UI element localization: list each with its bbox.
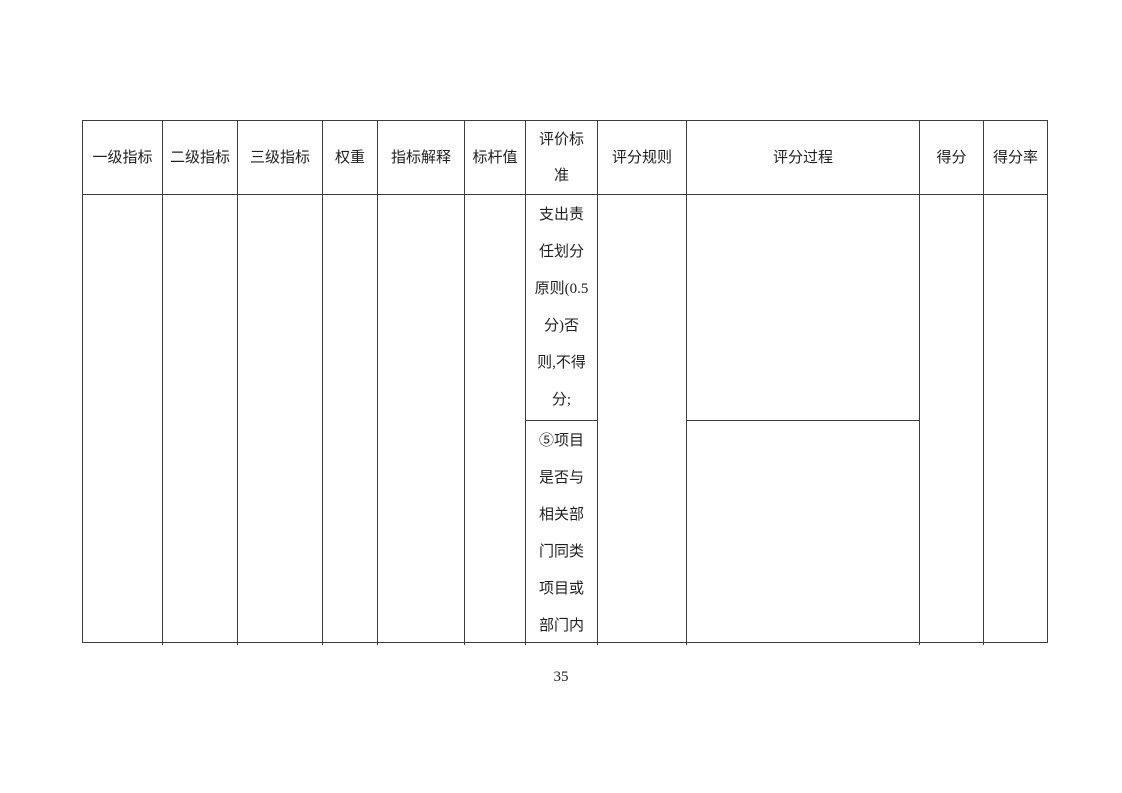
header-score: 得分 bbox=[920, 121, 984, 194]
page: { "page": { "number": "35" }, "colors": … bbox=[0, 0, 1122, 793]
header-benchmark-value: 标杆值 bbox=[465, 121, 526, 194]
header-weight: 权重 bbox=[323, 121, 378, 194]
header-level-3-indicator: 三级指标 bbox=[238, 121, 323, 194]
header-indicator-explanation: 指标解释 bbox=[378, 121, 465, 194]
scoring-process-cell-lower bbox=[687, 421, 919, 645]
header-score-rate: 得分率 bbox=[984, 121, 1047, 194]
column-score bbox=[920, 195, 984, 645]
evaluation-criteria-cell-lower: ⑤项目 是否与 相关部 门同类 项目或 部门内 bbox=[526, 421, 597, 645]
evaluation-criteria-cell-upper: 支出责 任划分 原则(0.5 分)否 则,不得 分; bbox=[526, 195, 597, 421]
column-evaluation-criteria: 支出责 任划分 原则(0.5 分)否 则,不得 分; ⑤项目 是否与 相关部 门… bbox=[526, 195, 598, 645]
evaluation-indicator-table: 一级指标 二级指标 三级指标 权重 指标解释 标杆值 评价标 准 评分规则 评分… bbox=[82, 120, 1048, 643]
header-evaluation-criteria: 评价标 准 bbox=[526, 121, 598, 194]
column-indicator-explanation bbox=[378, 195, 465, 645]
column-level-3-indicator bbox=[238, 195, 323, 645]
page-number: 35 bbox=[0, 669, 1122, 686]
column-weight bbox=[323, 195, 378, 645]
column-level-2-indicator bbox=[163, 195, 238, 645]
header-scoring-rules: 评分规则 bbox=[598, 121, 687, 194]
column-scoring-rules bbox=[598, 195, 687, 645]
table-header-row: 一级指标 二级指标 三级指标 权重 指标解释 标杆值 评价标 准 评分规则 评分… bbox=[83, 121, 1047, 195]
column-level-1-indicator bbox=[83, 195, 163, 645]
column-scoring-process bbox=[687, 195, 920, 645]
header-scoring-process: 评分过程 bbox=[687, 121, 920, 194]
header-level-1-indicator: 一级指标 bbox=[83, 121, 163, 194]
column-benchmark-value bbox=[465, 195, 526, 645]
column-score-rate bbox=[984, 195, 1047, 645]
header-level-2-indicator: 二级指标 bbox=[163, 121, 238, 194]
table-body: 支出责 任划分 原则(0.5 分)否 则,不得 分; ⑤项目 是否与 相关部 门… bbox=[83, 195, 1047, 645]
scoring-process-cell-upper bbox=[687, 195, 919, 421]
